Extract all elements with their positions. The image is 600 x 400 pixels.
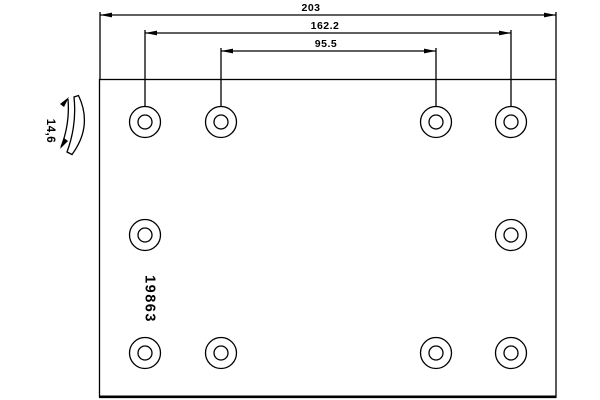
arrowhead-total-left	[100, 13, 112, 18]
rivet-hole	[206, 338, 237, 369]
rivet-hole	[130, 107, 161, 138]
rivet-hole	[421, 107, 452, 138]
rivet-hole	[496, 220, 527, 251]
lining-cross-section	[67, 96, 84, 155]
arrowhead-outer-right	[499, 31, 511, 36]
rivet-hole	[130, 338, 161, 369]
dimension-label-total-length: 203	[301, 3, 320, 14]
drawing-canvas	[0, 0, 600, 400]
thickness-label: 14,6	[43, 119, 55, 143]
dimension-label-outer-hole-spacing: 162.2	[311, 21, 340, 32]
rivet-hole	[206, 107, 237, 138]
rivet-hole	[130, 220, 161, 251]
rivet-hole	[496, 107, 527, 138]
rivet-hole	[496, 338, 527, 369]
dimension-label-inner-hole-spacing: 95.5	[315, 39, 337, 50]
arrowhead-inner-left	[221, 49, 233, 54]
rivet-hole	[421, 338, 452, 369]
arrowhead-outer-left	[145, 31, 157, 36]
backplate-outline	[100, 80, 557, 397]
arrowhead-inner-right	[424, 49, 436, 54]
technical-drawing: 203 162.2 95.5 14,6 19863	[0, 0, 600, 400]
part-number-label: 19863	[142, 275, 157, 323]
thickness-arrowhead-bottom	[60, 138, 68, 149]
arrowhead-total-right	[544, 13, 556, 18]
